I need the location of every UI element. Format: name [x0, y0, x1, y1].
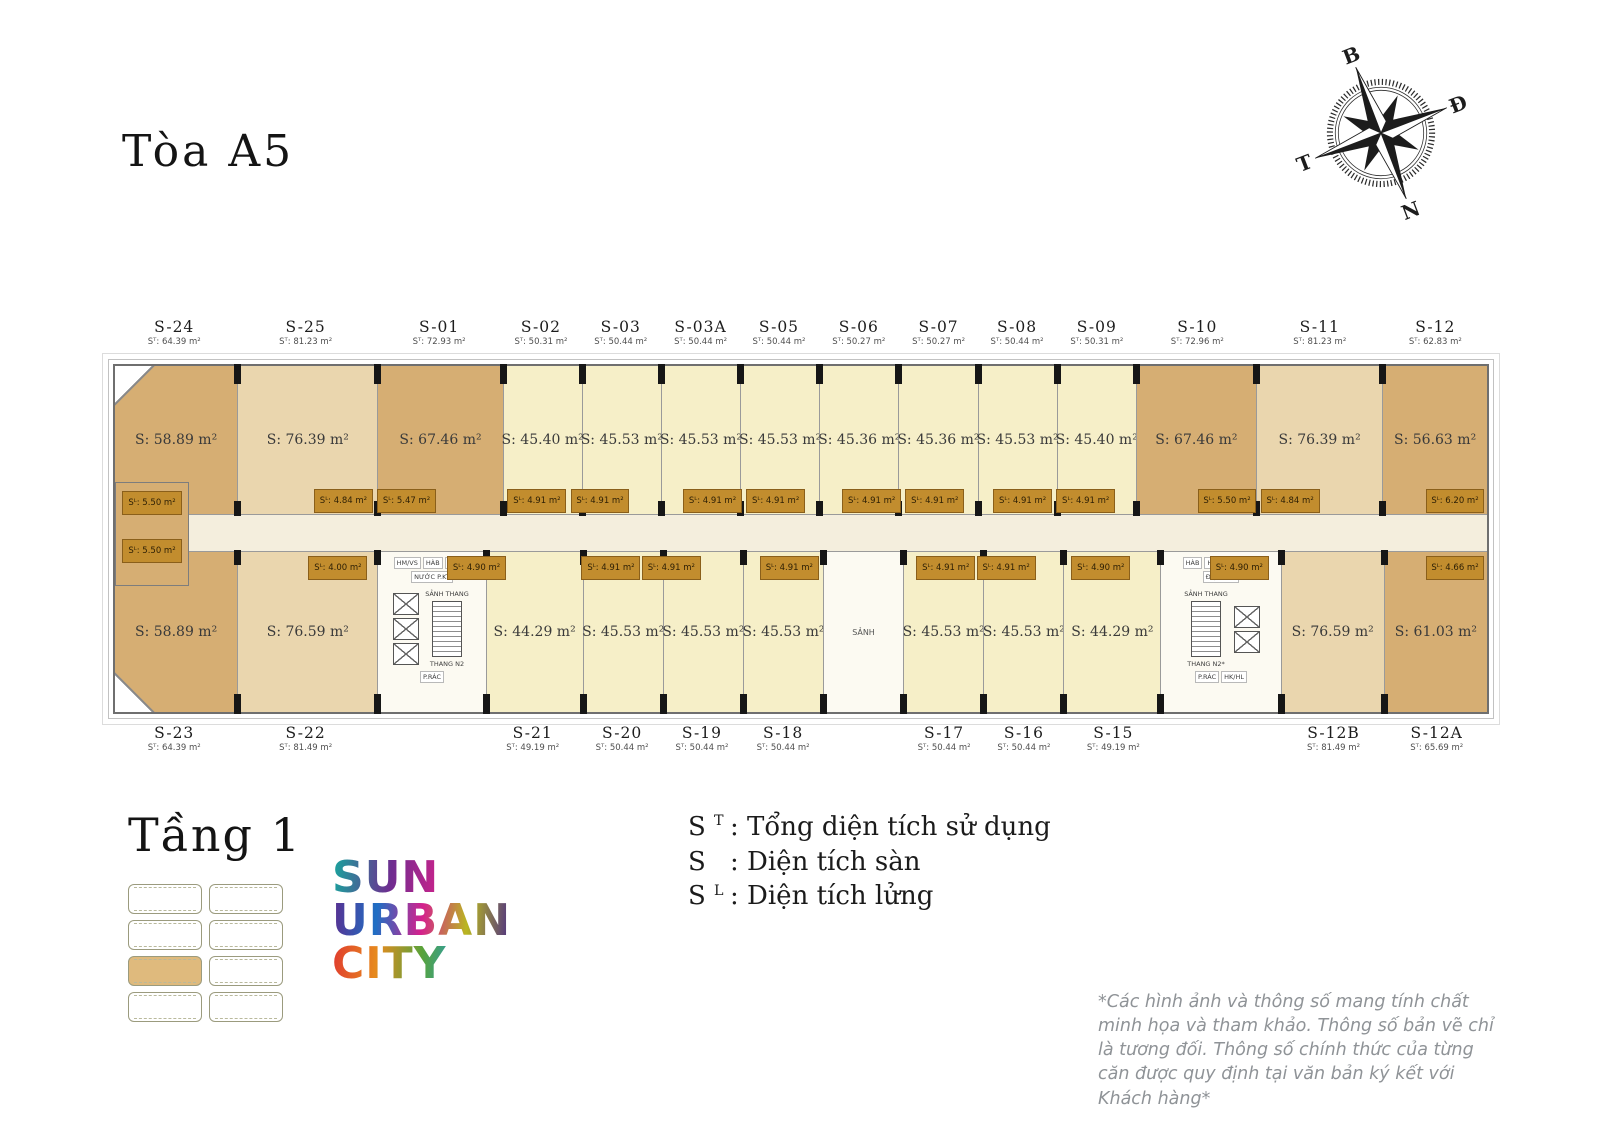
stair-lobby-label: SẢNH THANG [423, 589, 471, 599]
unit-label-s07: S-07Sᵀ: 50.27 m² [912, 318, 965, 347]
sl-box: Sᴸ: 4.91 m² [993, 489, 1052, 513]
top-unit-labels: S-24Sᵀ: 64.39 m² S-25Sᵀ: 81.23 m² S-01Sᵀ… [113, 318, 1489, 364]
unit-label-s15: S-15Sᵀ: 49.19 m² [1087, 724, 1140, 753]
elevator-icon [393, 593, 419, 615]
floor-plan: S-24Sᵀ: 64.39 m² S-25Sᵀ: 81.23 m² S-01Sᵀ… [113, 318, 1489, 774]
unit-label-s23: S-23Sᵀ: 64.39 m² [148, 724, 201, 753]
bottom-unit-labels: S-23Sᵀ: 64.39 m² S-22Sᵀ: 81.49 m² S-21Sᵀ… [113, 724, 1489, 774]
unit-label-s25: S-25Sᵀ: 81.23 m² [279, 318, 332, 347]
sl-box: Sᴸ: 4.91 m² [760, 556, 819, 580]
stairs-icon [1191, 601, 1221, 657]
sl-box: Sᴸ: 5.50 m² [122, 539, 182, 563]
compass-south-label: N [1398, 196, 1424, 225]
sl-box: Sᴸ: 4.91 m² [571, 489, 630, 513]
unit-label-s03a: S-03ASᵀ: 50.44 m² [674, 318, 727, 347]
unit-label-s08: S-08Sᵀ: 50.44 m² [991, 318, 1044, 347]
elevator-icon [393, 618, 419, 640]
unit-label-s12: S-12Sᵀ: 62.83 m² [1409, 318, 1462, 347]
core-room-label: P.RÁC [420, 671, 444, 683]
keyplan-building [209, 992, 283, 1022]
keyplan-building [128, 992, 202, 1022]
unit-label-s21: S-21Sᵀ: 49.19 m² [506, 724, 559, 753]
unit-label-s19: S-19Sᵀ: 50.44 m² [675, 724, 728, 753]
compass-icon: B Đ N T [1288, 40, 1474, 226]
disclaimer-text: *Các hình ảnh và thông số mang tính chất… [1098, 990, 1494, 1111]
compass-west-label: T [1293, 149, 1316, 177]
logo-line: CITY [332, 942, 511, 985]
unit-label-s16: S-16Sᵀ: 50.44 m² [997, 724, 1050, 753]
corridor [115, 514, 1487, 552]
unit-label-s09: S-09Sᵀ: 50.31 m² [1070, 318, 1123, 347]
floor-title: Tầng 1 [128, 808, 302, 862]
plan-body: S: 58.89 m² S: 76.39 m² S: 67.46 m² S: 4… [113, 364, 1489, 714]
unit-label-s17: S-17Sᵀ: 50.44 m² [918, 724, 971, 753]
stair-lobby-label: SẢNH THANG [1182, 589, 1230, 599]
elevator-icon [1234, 631, 1260, 653]
left-end-cap: Sᴸ: 5.50 m² Sᴸ: 5.50 m² [115, 482, 189, 586]
stair-label: THANG N2 [428, 659, 466, 669]
logo-line: SUN [332, 856, 511, 899]
elevator-bank [1234, 606, 1260, 653]
sl-box: Sᴸ: 4.84 m² [1261, 489, 1320, 513]
unit-label-s12a: S-12ASᵀ: 65.69 m² [1410, 724, 1463, 753]
keyplan-building [128, 884, 202, 914]
legend-line-mezzanine: SL: Diện tích lửng [688, 879, 1051, 914]
sl-box: Sᴸ: 4.91 m² [1056, 489, 1115, 513]
unit-label-s06: S-06Sᵀ: 50.27 m² [832, 318, 885, 347]
elevator-icon [1234, 606, 1260, 628]
sl-box: Sᴸ: 4.91 m² [683, 489, 742, 513]
sl-box: Sᴸ: 4.91 m² [581, 556, 640, 580]
sl-box: Sᴸ: 4.91 m² [507, 489, 566, 513]
building-title: Tòa A5 [122, 126, 294, 177]
unit-label-s01: S-01Sᵀ: 72.93 m² [413, 318, 466, 347]
keyplan-building [209, 920, 283, 950]
sl-box: Sᴸ: 4.90 m² [1210, 556, 1269, 580]
unit-label-s03: S-03Sᵀ: 50.44 m² [594, 318, 647, 347]
area-legend: ST: Tổng diện tích sử dụng S: Diện tích … [688, 810, 1051, 914]
keyplan-building-highlighted-a5 [128, 956, 202, 986]
sl-box: Sᴸ: 4.66 m² [1426, 556, 1484, 580]
room-s12b: S: 76.59 m² [1281, 552, 1384, 712]
sl-box: Sᴸ: 5.50 m² [122, 491, 182, 515]
unit-label-s10: S-10Sᵀ: 72.96 m² [1171, 318, 1224, 347]
compass-rose: B Đ N T [1288, 40, 1474, 226]
lobby-sanh: SẢNH [823, 552, 903, 712]
core-room-label: HÀB [1183, 557, 1203, 569]
unit-label-s05: S-05Sᵀ: 50.44 m² [752, 318, 805, 347]
sl-box: Sᴸ: 4.90 m² [1071, 556, 1130, 580]
sl-box: Sᴸ: 5.47 m² [377, 489, 436, 513]
unit-label-s20: S-20Sᵀ: 50.44 m² [596, 724, 649, 753]
unit-label-s18: S-18Sᵀ: 50.44 m² [757, 724, 810, 753]
sl-box: Sᴸ: 4.91 m² [842, 489, 901, 513]
unit-label-s12b: S-12BSᵀ: 81.49 m² [1307, 724, 1360, 753]
core-room-label: HK/HL [1221, 671, 1247, 683]
sl-box: Sᴸ: 4.84 m² [314, 489, 373, 513]
sl-box: Sᴸ: 4.91 m² [746, 489, 805, 513]
keyplan-building [209, 956, 283, 986]
sl-box: Sᴸ: 4.91 m² [916, 556, 975, 580]
elevator-icon [393, 643, 419, 665]
sl-box: Sᴸ: 6.20 m² [1426, 489, 1484, 513]
floorplan-page: Tòa A5 B Đ N T [0, 0, 1600, 1131]
unit-label-s22: S-22Sᵀ: 81.49 m² [279, 724, 332, 753]
stairs-icon [432, 601, 462, 657]
sl-box: Sᴸ: 4.91 m² [977, 556, 1036, 580]
compass-east-label: Đ [1446, 90, 1471, 119]
sun-urban-city-logo: SUN URBAN CITY [332, 856, 511, 985]
sl-box: Sᴸ: 4.91 m² [642, 556, 701, 580]
sl-box: Sᴸ: 4.00 m² [308, 556, 367, 580]
core-room-label: HÀB [423, 557, 443, 569]
sl-box: Sᴸ: 4.90 m² [447, 556, 506, 580]
stair-label: THANG N2* [1185, 659, 1227, 669]
unit-label-s11: S-11Sᵀ: 81.23 m² [1293, 318, 1346, 347]
core-room-label: P.RÁC [1195, 671, 1219, 683]
sl-box: Sᴸ: 4.91 m² [905, 489, 964, 513]
compass-north-label: B [1339, 41, 1363, 69]
keyplan-building [209, 884, 283, 914]
unit-label-s02: S-02Sᵀ: 50.31 m² [514, 318, 567, 347]
site-key-plan [128, 884, 283, 1022]
unit-label-s24: S-24Sᵀ: 64.39 m² [148, 318, 201, 347]
elevator-bank [393, 593, 419, 665]
legend-line-floor: S: Diện tích sàn [688, 845, 1051, 880]
logo-line: URBAN [332, 899, 511, 942]
core-room-label: HM/VS [394, 557, 421, 569]
legend-line-total: ST: Tổng diện tích sử dụng [688, 810, 1051, 845]
sl-box: Sᴸ: 5.50 m² [1198, 489, 1257, 513]
keyplan-building [128, 920, 202, 950]
